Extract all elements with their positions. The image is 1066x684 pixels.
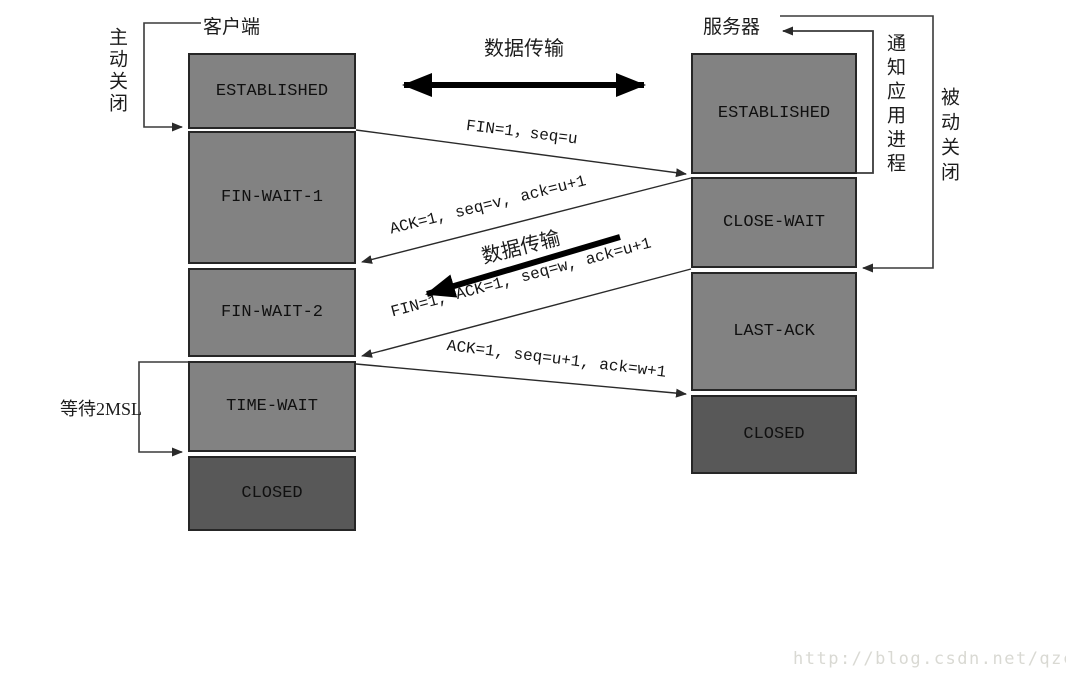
passive-close-annotation: 被动关闭 — [935, 87, 962, 187]
wait-2msl-annotation: 等待2MSL — [60, 395, 142, 421]
notify-app-annotation: 通知应用进程 — [881, 33, 908, 177]
client-title: 客户端 — [203, 12, 260, 39]
state-label: CLOSED — [743, 425, 804, 444]
client-state-fin-wait-2: FIN-WAIT-2 — [188, 268, 356, 357]
state-label: FIN-WAIT-2 — [221, 303, 323, 322]
state-label: LAST-ACK — [733, 322, 815, 341]
watermark-url: http://blog.csdn.net/qzcsu — [793, 649, 1066, 669]
server-state-close-wait: CLOSE-WAIT — [691, 177, 857, 268]
client-state-established: ESTABLISHED — [188, 53, 356, 129]
server-title: 服务器 — [703, 12, 760, 39]
client-state-closed: CLOSED — [188, 456, 356, 531]
server-state-last-ack: LAST-ACK — [691, 272, 857, 391]
client-state-time-wait: TIME-WAIT — [188, 361, 356, 452]
server-state-established: ESTABLISHED — [691, 53, 857, 174]
state-label: TIME-WAIT — [226, 397, 318, 416]
active-close-annotation: 主动关闭 — [103, 27, 130, 115]
data-transfer-top-label: 数据传输 — [484, 32, 564, 61]
client-state-fin-wait-1: FIN-WAIT-1 — [188, 131, 356, 264]
state-label: FIN-WAIT-1 — [221, 188, 323, 207]
tcp-close-diagram: ESTABLISHED FIN-WAIT-1 FIN-WAIT-2 TIME-W… — [0, 0, 1066, 684]
transition-wait-2msl-line — [139, 362, 188, 452]
state-label: CLOSED — [241, 484, 302, 503]
server-state-closed: CLOSED — [691, 395, 857, 474]
state-label: CLOSE-WAIT — [723, 213, 825, 232]
state-label: ESTABLISHED — [216, 82, 328, 101]
state-label: ESTABLISHED — [718, 104, 830, 123]
